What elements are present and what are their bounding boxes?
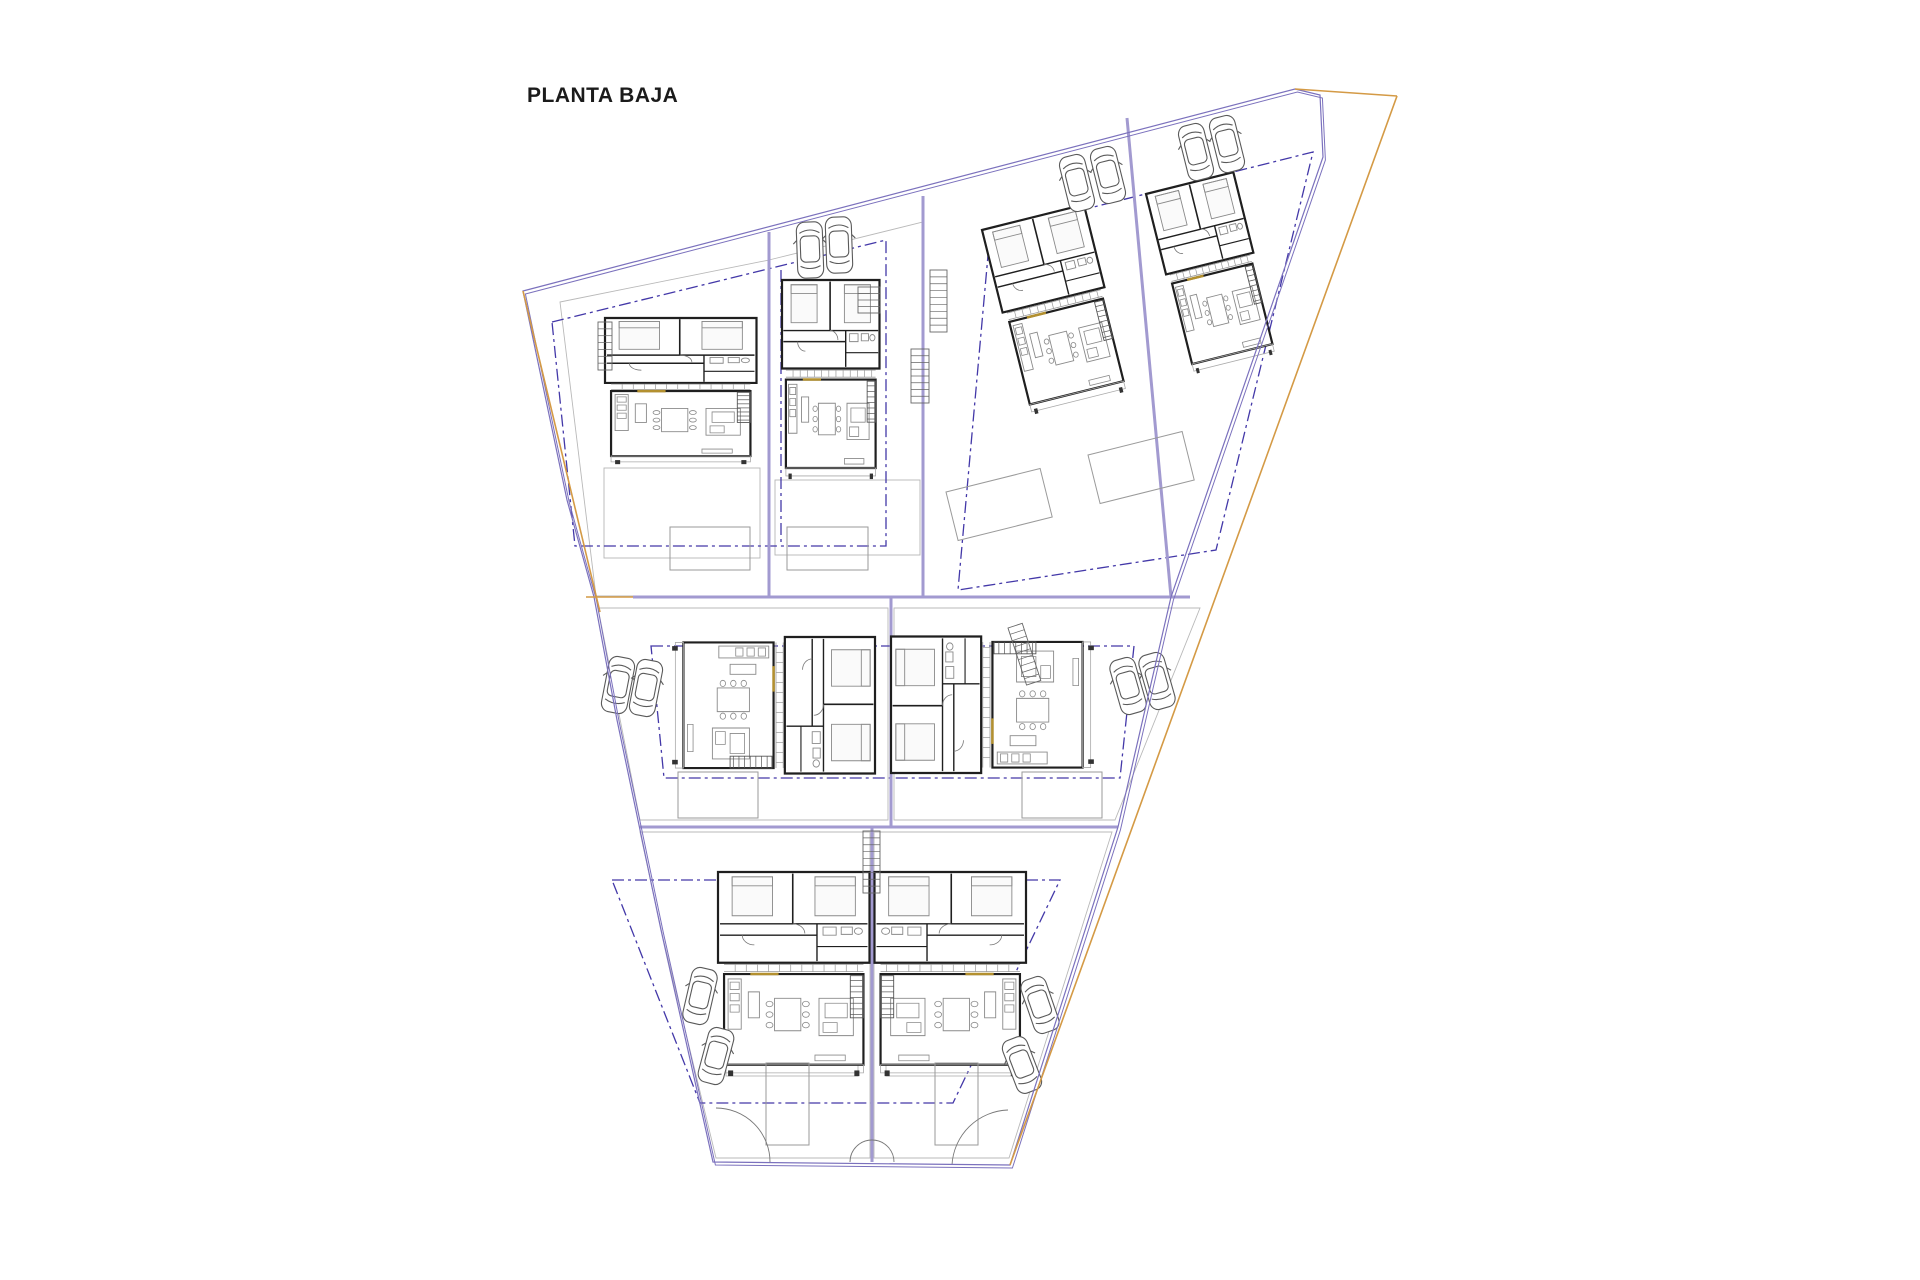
- pool: [670, 527, 750, 570]
- villa-floor-plan: [782, 280, 880, 479]
- villa-floor-plan: [982, 205, 1130, 416]
- orange-boundary-line: [523, 291, 600, 612]
- pool: [766, 1063, 809, 1145]
- car-plan: [793, 221, 828, 278]
- villa-floor-plan: [672, 637, 875, 774]
- pool: [1022, 772, 1102, 818]
- page-title: PLANTA BAJA: [527, 84, 678, 108]
- pool: [946, 469, 1052, 541]
- terrace: [775, 480, 920, 555]
- site-plan-drawing: [0, 0, 1920, 1280]
- gate-swing-arc: [872, 1140, 894, 1162]
- gate-swing-arc: [716, 1108, 770, 1162]
- terrace: [604, 468, 760, 558]
- gate-arcs-layer: [716, 1108, 1008, 1165]
- car-plan: [678, 965, 723, 1027]
- villa-floor-plan: [605, 318, 757, 464]
- stairs-hatch: [911, 349, 929, 403]
- villas-layer: [605, 172, 1278, 1076]
- gate-swing-arc: [952, 1110, 1008, 1165]
- pool: [787, 527, 868, 570]
- pool: [678, 772, 758, 818]
- car-plan: [822, 216, 857, 273]
- floor-plan-sheet: PLANTA BAJA: [0, 0, 1920, 1280]
- villa-floor-plan: [718, 872, 870, 1076]
- stairs-hatch: [930, 270, 947, 332]
- villa-floor-plan: [891, 637, 1094, 774]
- pool: [935, 1063, 978, 1145]
- gate-swing-arc: [850, 1140, 872, 1162]
- pool: [1088, 432, 1194, 504]
